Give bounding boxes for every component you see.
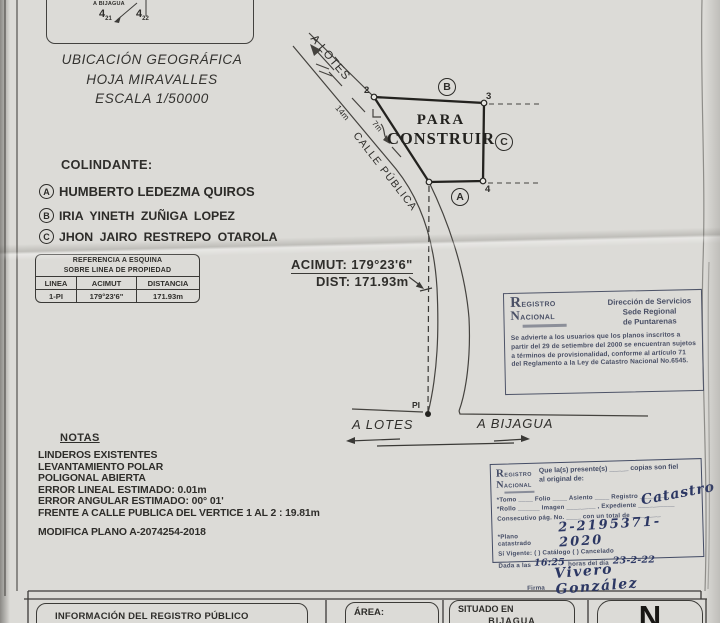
nota-line-4: ERROR LINEAL ESTIMADO: 0.01m — [38, 485, 206, 496]
corner-reference-table: REFERENCIA A ESQUINA SOBRE LINEA DE PROP… — [35, 254, 200, 303]
cert-plano-label: *Plano catastrado — [498, 533, 551, 548]
ubicacion-line2: HOJA MIRAVALLES — [32, 70, 272, 90]
survey-tick — [420, 288, 432, 291]
grid-421-sub: 21 — [105, 16, 112, 22]
sketch-bijagua-label: A BIJAGUA — [93, 1, 125, 7]
survey-line — [409, 186, 432, 417]
logo-nacional: ACIONAL — [520, 314, 555, 322]
ref-table-title-1: REFERENCIA A ESQUINA — [36, 255, 199, 265]
cert-logo-nacional: ACIONAL — [504, 483, 532, 490]
notas-title: NOTAS — [60, 432, 100, 444]
nota-line-3: POLIGONAL ABIERTA — [38, 473, 146, 484]
north-arrow-icon: N — [598, 601, 702, 623]
nota-line-2: LEVANTAMIENTO POLAR — [38, 462, 163, 473]
neighbor-a-badge: A — [451, 188, 469, 206]
colindante-item-a: A HUMBERTO LEDEZMA QUIROS — [39, 184, 255, 199]
ref-cell-distancia: 171.93m — [137, 290, 200, 303]
logo-tagline-bar — [523, 324, 567, 328]
cert-logo-big-n: N — [496, 480, 504, 491]
grid-label-421: 421 — [99, 8, 112, 22]
footer-box-north: N — [597, 600, 703, 623]
pi-point — [425, 411, 431, 417]
colindante-item-b: B IRIA YINETH ZUÑIGA LOPEZ — [39, 208, 235, 223]
footer-box-registro-publico: INFORMACIÓN DEL REGISTRO PÚBLICO — [36, 603, 308, 623]
cert-dada-label-1: Dada a las — [498, 562, 531, 570]
cert-row-plano: *Plano catastrado 2-2195371-2020 — [492, 519, 703, 548]
bottom-arrows — [346, 435, 530, 446]
modifica-plano-note: MODIFICA PLANO A-2074254-2018 — [38, 527, 206, 538]
a-lotes-arrowhead — [346, 437, 355, 444]
vertex-1-marker — [426, 179, 432, 185]
colindante-name-a: HUMBERTO LEDEZMA QUIROS — [59, 184, 255, 199]
ref-col-acimut: ACIMUT — [77, 277, 137, 290]
footer-situado-value: BIJAGUA — [450, 614, 574, 623]
ref-cell-acimut: 179°23'6" — [77, 290, 137, 303]
footer-area-label: ÁREA: — [346, 603, 438, 618]
colindante-name-c: JHON JAIRO RESTREPO OTAROLA — [59, 230, 278, 244]
logo-line-2: NACIONAL — [510, 310, 566, 324]
geographic-location-block: UBICACIÓN GEOGRÁFICA HOJA MIRAVALLES ESC… — [32, 50, 272, 109]
registro-nacional-logo: REGISTRO NACIONAL — [510, 297, 567, 330]
stamp-regional-header: REGISTRO NACIONAL Dirección de Servicios… — [504, 290, 702, 330]
ref-table-title-2: SOBRE LINEA DE PROPIEDAD — [36, 265, 199, 275]
cert-logo-tagline-bar — [504, 491, 534, 494]
cert-logo-line-2: NACIONAL — [496, 479, 534, 491]
registro-nacional-regional-stamp: REGISTRO NACIONAL Dirección de Servicios… — [503, 289, 704, 395]
ref-table: LINEA ACIMUT DISTANCIA 1-PI 179°23'6" 17… — [36, 276, 199, 302]
neighbor-b-badge: B — [438, 78, 456, 96]
a-bijagua-arrowhead — [521, 435, 530, 442]
vertex-4-marker — [480, 178, 486, 184]
neighbor-c-badge: C — [495, 133, 513, 151]
logo-registro: EGISTRO — [521, 301, 555, 309]
ref-col-distancia: DISTANCIA — [137, 277, 200, 290]
stamp-regional-office: Dirección de Servicios Sede Regional de … — [607, 294, 697, 328]
scanned-survey-plan-photo: A BIJAGUA 421 422 UBICACIÓN GEOGRÁFICA H… — [0, 0, 720, 623]
vertex-2-marker — [371, 94, 377, 100]
para-construir-label: PARA CONSTRUIR — [370, 112, 512, 149]
acimut-label: ACIMUT: 179°23'6" — [291, 257, 413, 274]
pi-label: PI — [412, 400, 420, 410]
colindante-item-c: C JHON JAIRO RESTREPO OTAROLA — [39, 229, 278, 244]
footer-info-label: INFORMACIÓN DEL REGISTRO PÚBLICO — [37, 604, 307, 622]
dist-label: DIST: 171.93m — [316, 274, 409, 289]
cert-logo-registro: EGISTRO — [504, 472, 532, 479]
a-lotes-bottom-label: A LOTES — [352, 417, 413, 432]
stamp-regional-notice: Se advierte a los usuarios que los plano… — [505, 331, 703, 370]
circled-b-icon: B — [39, 208, 54, 223]
logo-big-n: N — [510, 308, 520, 323]
nota-line-1: LINDEROS EXISTENTES — [38, 450, 157, 461]
ref-table-header-row: LINEA ACIMUT DISTANCIA — [36, 277, 199, 290]
footer-box-area: ÁREA: — [345, 602, 439, 623]
ubicacion-line1: UBICACIÓN GEOGRÁFICA — [32, 50, 272, 70]
dir-line-3: de Puntarenas — [608, 316, 692, 328]
para-line: PARA — [370, 112, 512, 129]
a-lotes-arrow-line — [349, 439, 400, 441]
ref-col-linea: LINEA — [36, 277, 77, 290]
location-sketch-box — [46, 0, 254, 44]
vertex-2-label: 2 — [364, 85, 369, 96]
registro-nacional-certification-stamp: REGISTRO NACIONAL Que la(s) presente(s) … — [490, 458, 705, 563]
colindante-title: COLINDANTE: — [61, 157, 152, 172]
a-bijagua-bottom-label: A BIJAGUA — [477, 416, 553, 431]
footer-box-situado: SITUADO EN BIJAGUA — [449, 600, 575, 623]
vertex-3-label: 3 — [486, 91, 491, 102]
ref-table-data-row: 1-PI 179°23'6" 171.93m — [36, 290, 199, 303]
nota-line-5: ERROR ANGULAR ESTIMADO: 00° 01' — [38, 496, 224, 507]
road-left-edge — [293, 46, 438, 413]
circled-c-icon: C — [39, 229, 54, 244]
colindante-name-b: IRIA YINETH ZUÑIGA LOPEZ — [59, 209, 235, 223]
dashed-survey-line — [428, 186, 429, 413]
cert-firma-label: Firma — [527, 584, 545, 591]
circled-a-icon: A — [39, 184, 54, 199]
footer-situado-label: SITUADO EN — [450, 601, 574, 614]
grid-label-422: 422 — [136, 8, 149, 22]
ubicacion-line3: ESCALA 1/50000 — [32, 89, 272, 109]
nota-line-6: FRENTE A CALLE PUBLICA DEL VERTICE 1 AL … — [38, 508, 320, 519]
cert-logo: REGISTRO NACIONAL — [496, 468, 535, 494]
vertex-4-label: 4 — [485, 184, 490, 195]
grid-422-sub: 22 — [142, 16, 149, 22]
long-reference-line — [377, 443, 514, 446]
construir-line: CONSTRUIR — [370, 129, 512, 149]
ref-cell-linea: 1-PI — [36, 290, 77, 303]
paper-right-edge-2 — [708, 262, 709, 589]
